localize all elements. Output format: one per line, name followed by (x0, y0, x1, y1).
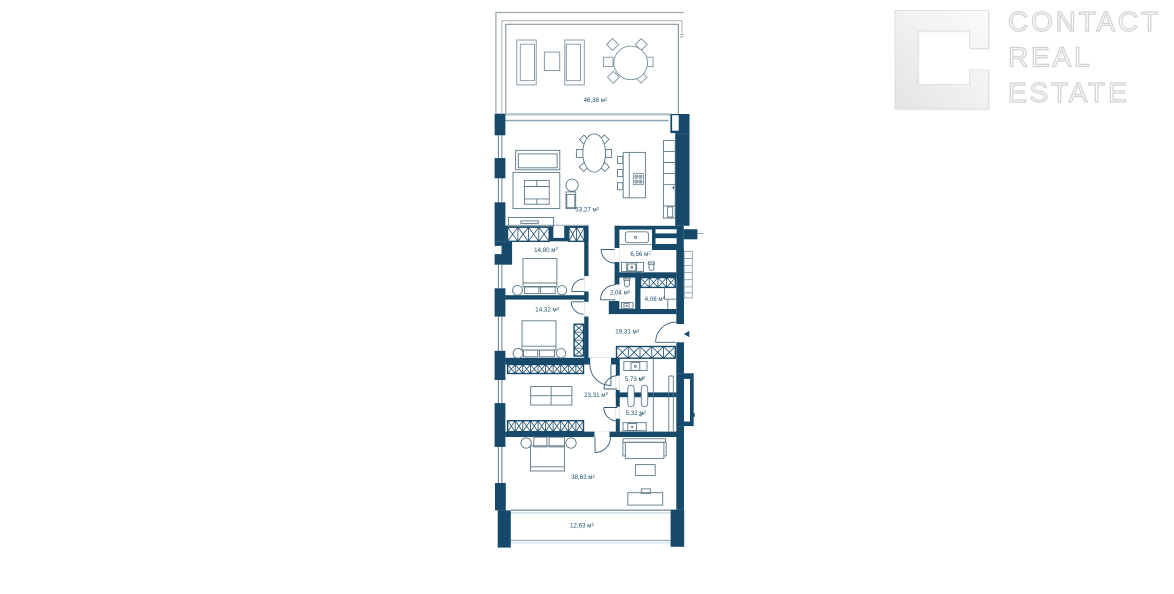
svg-text:ESTATE: ESTATE (1008, 77, 1130, 108)
svg-text:53,27 м2: 53,27 м2 (575, 206, 599, 214)
svg-text:23,31 м2: 23,31 м2 (584, 391, 608, 399)
svg-text:5,32 м2: 5,32 м2 (626, 410, 647, 418)
svg-text:14,80 м2: 14,80 м2 (534, 246, 558, 254)
svg-text:2,04 м2: 2,04 м2 (610, 289, 631, 297)
svg-text:REAL: REAL (1008, 42, 1092, 73)
svg-text:4,06 м2: 4,06 м2 (645, 295, 666, 303)
svg-text:5,73 м2: 5,73 м2 (625, 375, 646, 383)
svg-text:CONTACT: CONTACT (1008, 6, 1161, 37)
svg-text:6,56 м2: 6,56 м2 (630, 251, 651, 259)
svg-text:19,31 м2: 19,31 м2 (615, 328, 639, 336)
svg-text:38,63 м2: 38,63 м2 (571, 473, 595, 481)
svg-text:46,38 м2: 46,38 м2 (584, 97, 608, 105)
svg-text:14,32 м2: 14,32 м2 (535, 306, 559, 314)
svg-text:12,63 м2: 12,63 м2 (570, 522, 594, 530)
